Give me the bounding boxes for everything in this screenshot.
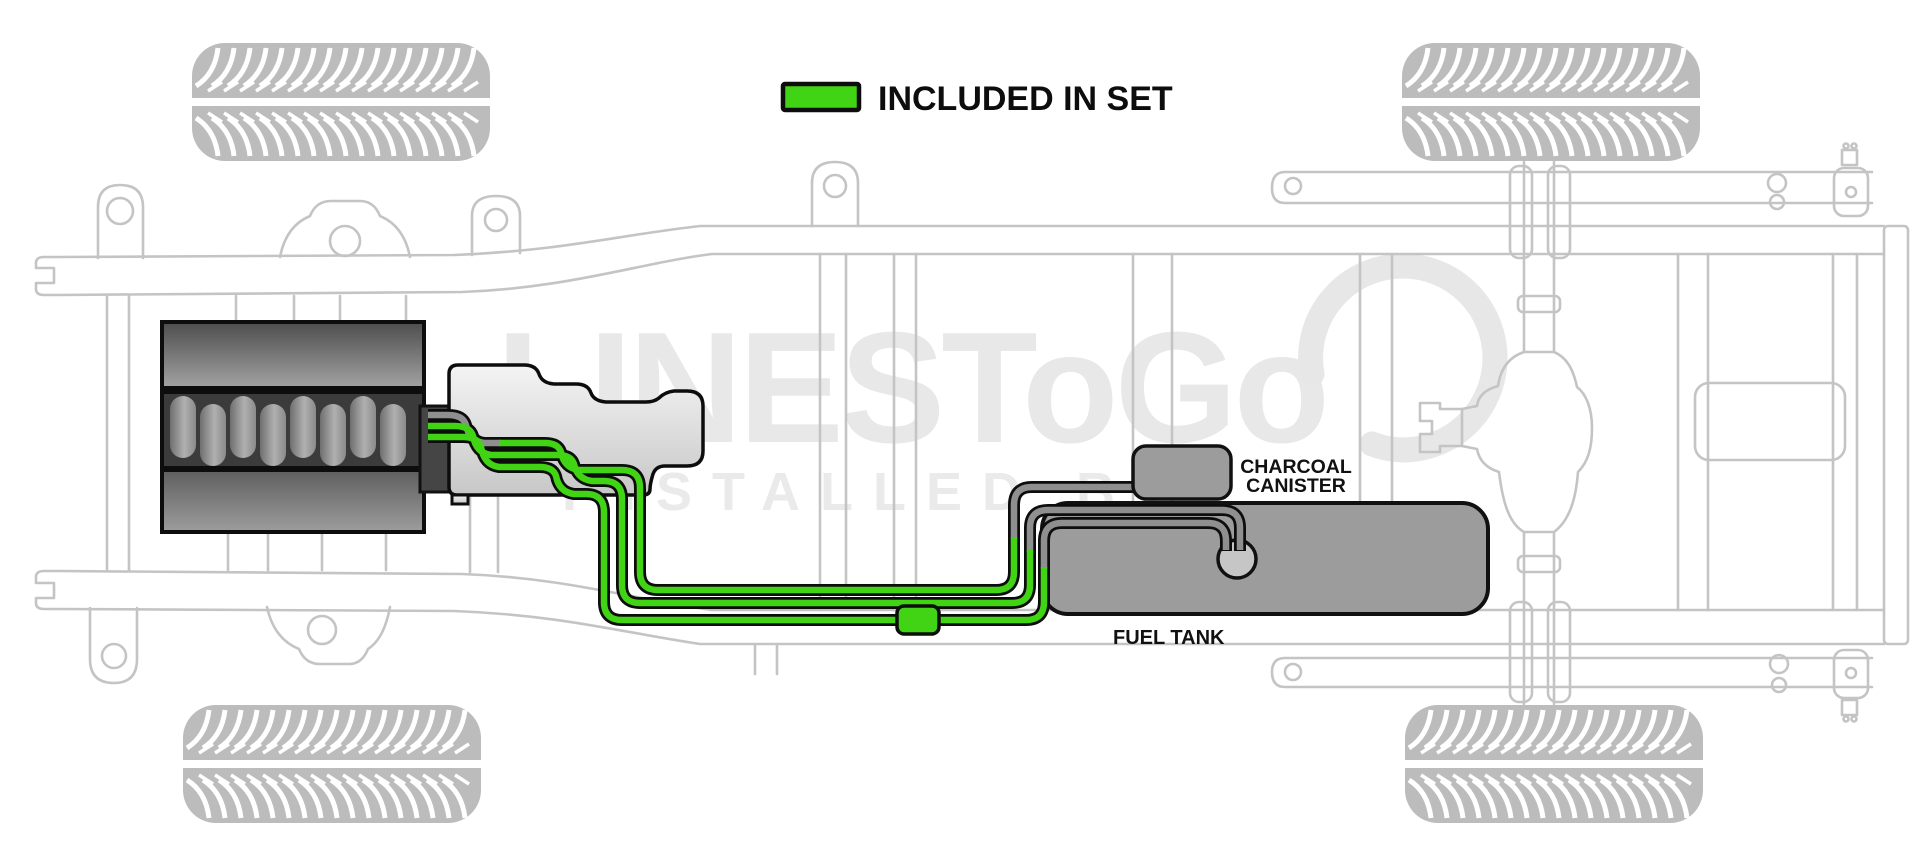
spring-hanger-dome-top	[280, 201, 410, 257]
engine	[162, 322, 458, 532]
tire-front-right	[183, 705, 481, 823]
bracket-hole-bottom	[102, 644, 126, 668]
tire-front-left	[192, 43, 490, 161]
hanger-bolt-top	[1846, 187, 1856, 197]
cab-mount-bracket-2	[812, 162, 858, 226]
rear-axle-tube	[1524, 162, 1554, 704]
engine-valve-cover	[162, 322, 424, 388]
tire-rear-top	[1402, 43, 1700, 161]
u-bolt-plate-top-2	[1548, 166, 1570, 258]
fitting-dot-top-2	[1852, 144, 1857, 149]
dome-hole-bottom	[308, 616, 336, 644]
fitting-bottom	[1842, 700, 1857, 715]
bracket-hole-top	[107, 198, 133, 224]
frame-rail-top	[36, 226, 1884, 295]
charcoal-canister-label-line2: CANISTER	[1246, 475, 1346, 497]
cab-mount-hole-1	[485, 209, 507, 231]
fitting-dot-bottom-1	[1844, 717, 1849, 722]
engine-block-lower	[162, 470, 424, 532]
fuel-tank-label: FUEL TANK	[1113, 627, 1225, 649]
fuel-line-diagram-page: LINESToGo INSTALLED BY	[0, 0, 1930, 841]
charcoal-canister	[1133, 446, 1231, 499]
cab-mount-hole-2	[824, 175, 846, 197]
shackle-bolt-bottom-2	[1772, 678, 1786, 692]
fuel-line-connector	[897, 606, 939, 634]
hanger-bolt-bottom	[1846, 668, 1856, 678]
rear-crossmember	[1884, 226, 1908, 644]
body-mount-bracket-bottom	[90, 608, 137, 683]
spring-hanger-top	[1834, 168, 1868, 216]
dome-hole-top	[330, 226, 360, 256]
legend-swatch	[783, 84, 859, 110]
legend-label: INCLUDED IN SET	[878, 80, 1173, 118]
chassis-diagram: LINESToGo INSTALLED BY	[0, 0, 1930, 841]
spring-eye-bottom	[1285, 664, 1301, 680]
fitting-dot-bottom-2	[1852, 717, 1857, 722]
cab-mount-bracket-1	[472, 196, 520, 255]
spare-carrier-box	[1695, 383, 1845, 460]
u-bolt-plate-top-1	[1510, 166, 1532, 258]
spring-hanger-dome-bottom	[267, 607, 390, 664]
body-mount-bracket-top	[98, 185, 143, 258]
tire-rear-bottom	[1405, 705, 1703, 823]
spring-eye-top	[1285, 178, 1301, 194]
fitting-dot-top-1	[1844, 144, 1849, 149]
fitting-top	[1842, 150, 1857, 165]
shackle-bolt-top-1	[1768, 174, 1786, 192]
watermark-swoosh-icon	[1311, 266, 1495, 450]
transmission-mount-foot	[452, 495, 468, 504]
